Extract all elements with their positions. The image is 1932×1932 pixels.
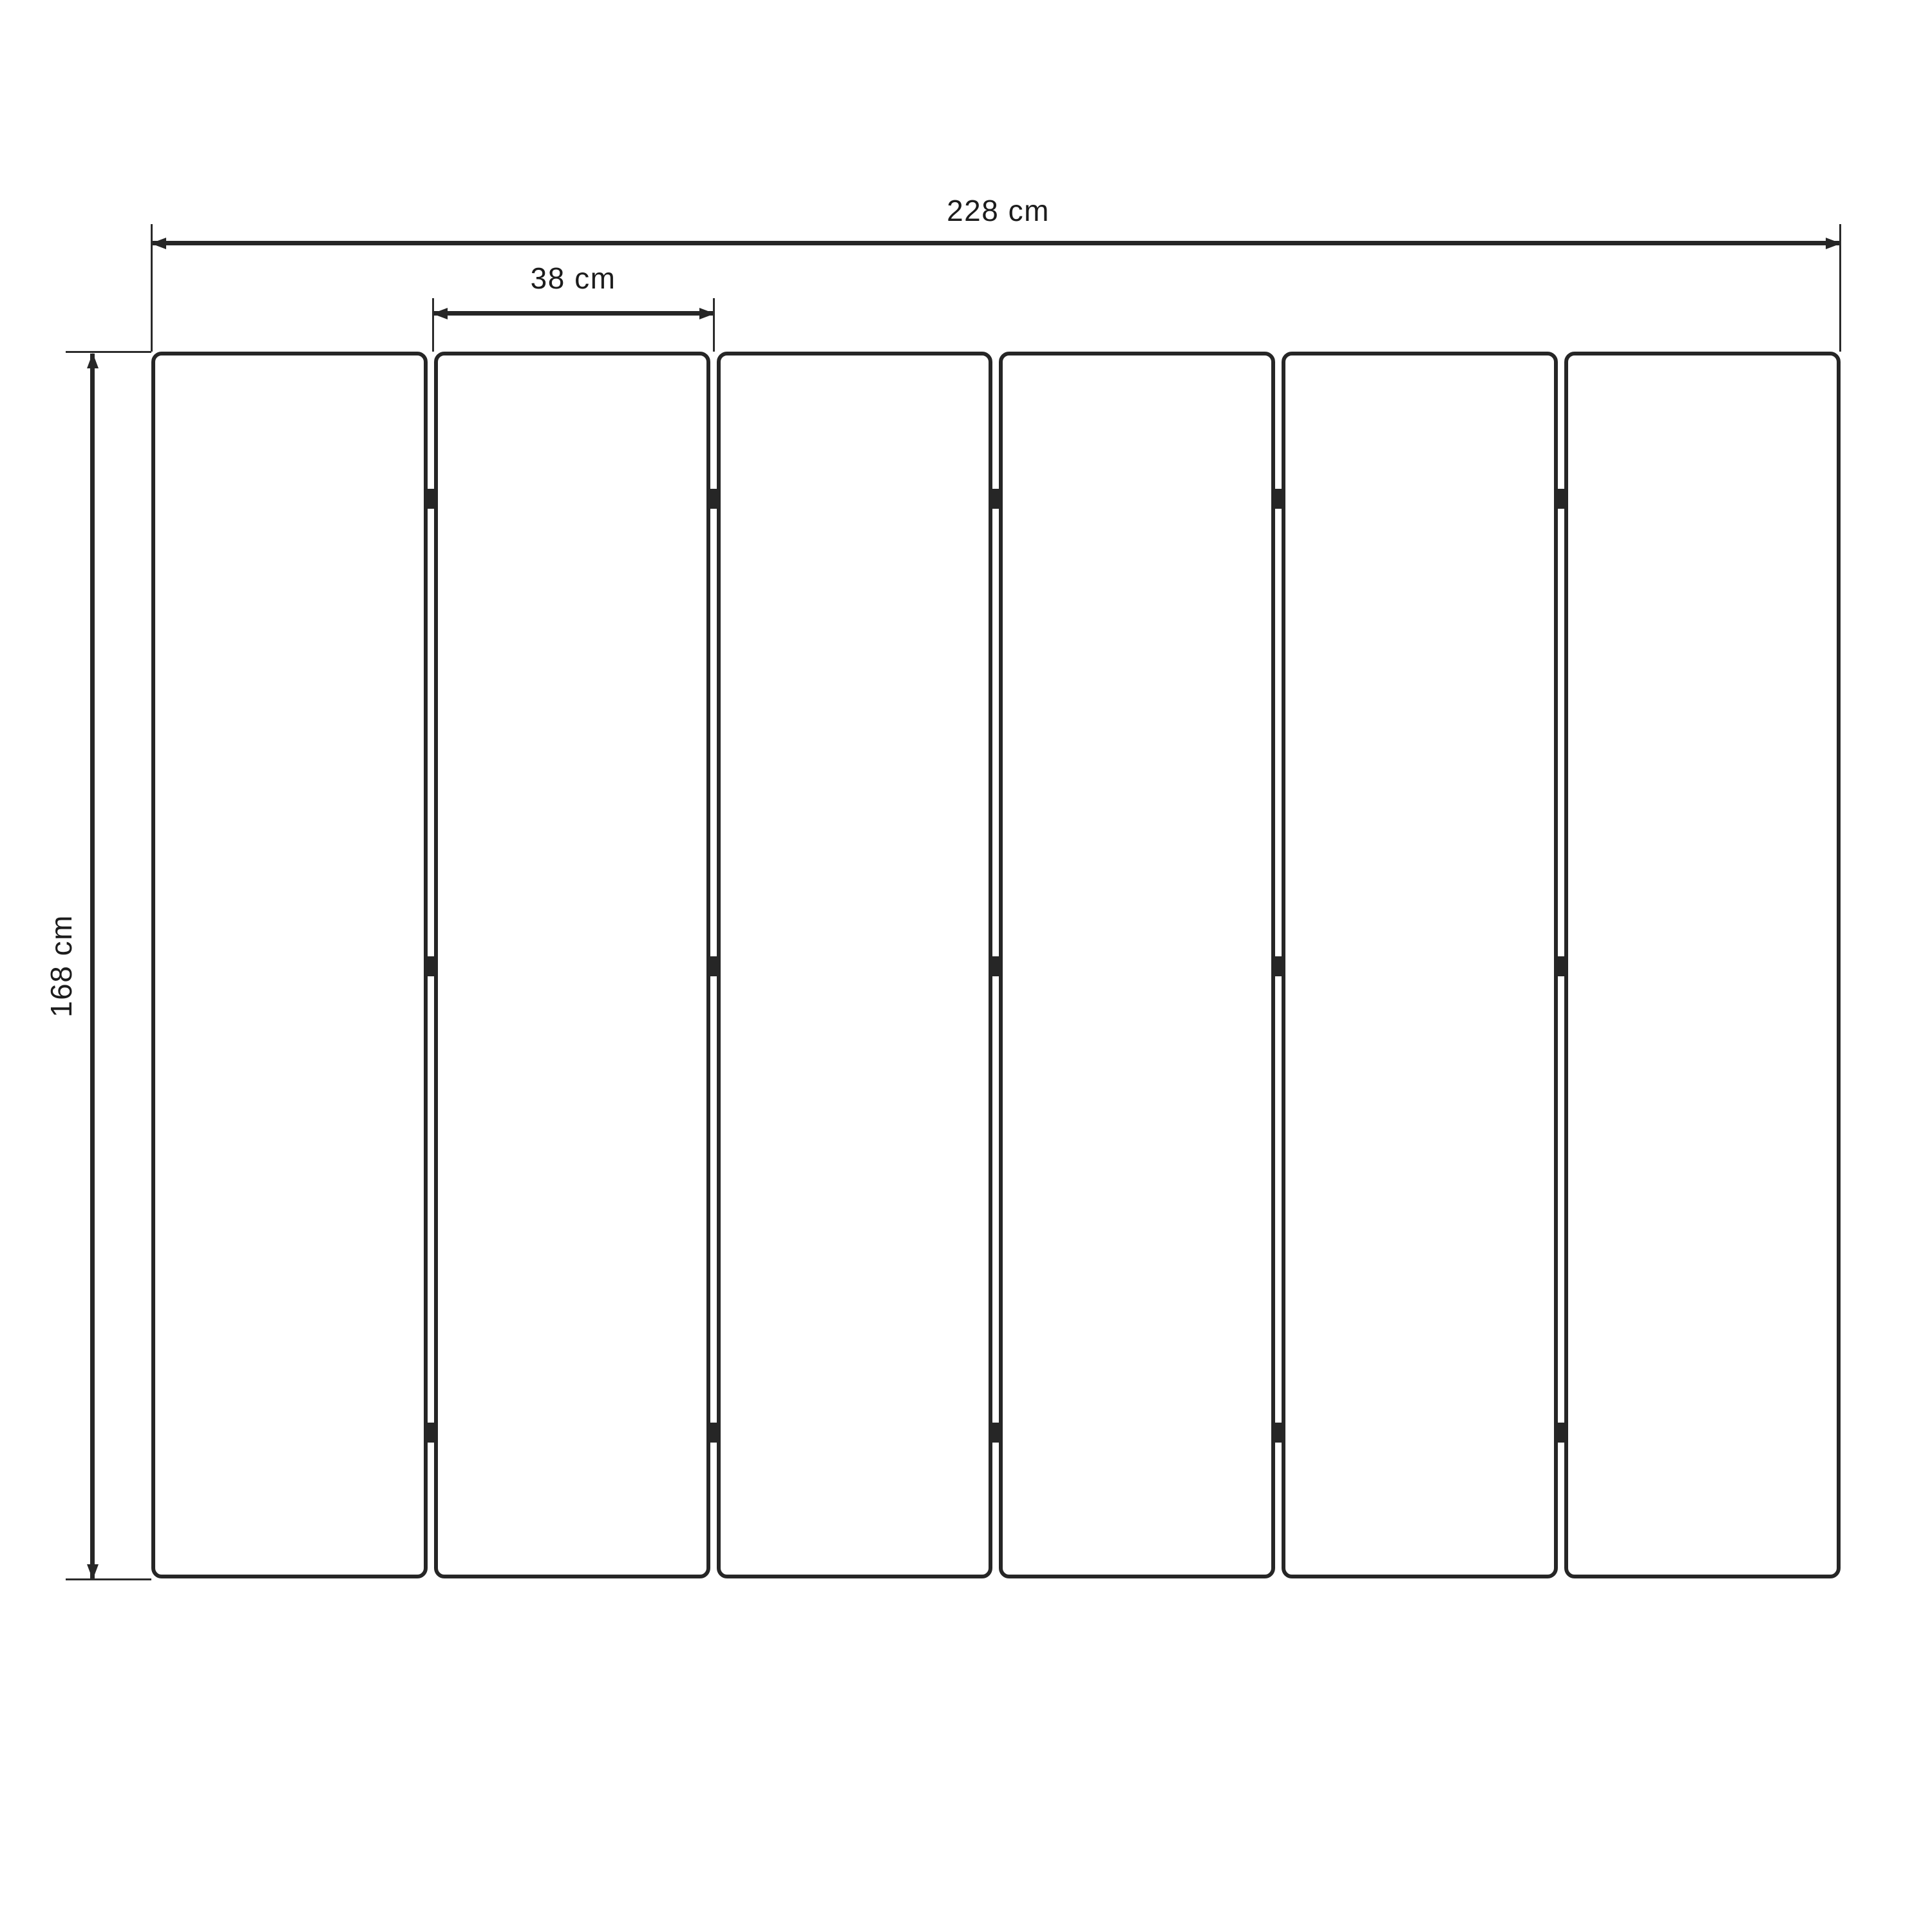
arrowhead-up-icon bbox=[87, 353, 99, 368]
total-width-label: 228 cm bbox=[947, 193, 1050, 228]
extension-line-panel-width-right bbox=[713, 298, 715, 352]
panels-row bbox=[151, 352, 1841, 1578]
extension-line-height-top bbox=[66, 351, 151, 353]
panel bbox=[434, 352, 710, 1578]
panel-width-dimension-line bbox=[433, 311, 714, 316]
extension-line-total-width-left bbox=[151, 224, 153, 352]
total-width-dimension-line bbox=[151, 241, 1841, 245]
panel bbox=[1282, 352, 1558, 1578]
arrowhead-left-icon bbox=[432, 308, 448, 319]
extension-line-panel-width-left bbox=[432, 298, 434, 352]
extension-line-height-bottom bbox=[66, 1578, 151, 1580]
extension-line-total-width-right bbox=[1839, 224, 1841, 352]
height-label: 168 cm bbox=[44, 914, 79, 1018]
arrowhead-left-icon bbox=[151, 238, 166, 249]
panel bbox=[1564, 352, 1841, 1578]
panel bbox=[151, 352, 428, 1578]
height-dimension-line bbox=[90, 354, 95, 1579]
panel bbox=[999, 352, 1275, 1578]
panel bbox=[717, 352, 993, 1578]
dimension-diagram: 228 cm 38 cm 168 cm bbox=[0, 0, 1932, 1932]
panel-width-label: 38 cm bbox=[531, 261, 616, 296]
arrowhead-down-icon bbox=[87, 1564, 99, 1580]
